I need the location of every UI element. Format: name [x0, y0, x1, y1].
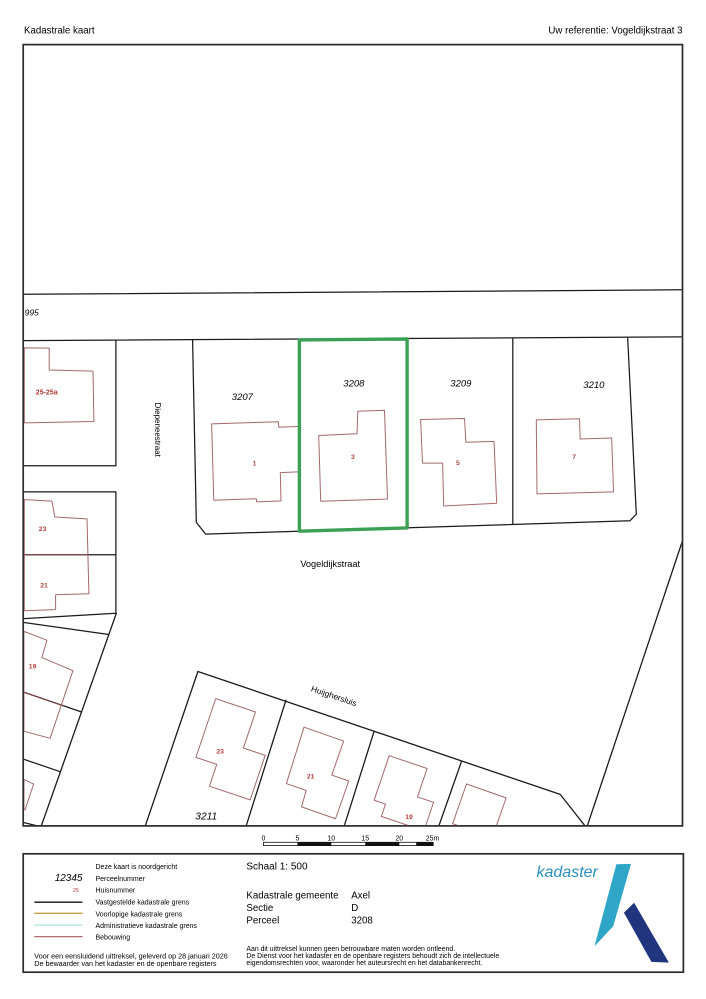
svg-text:Huijghersluis: Huijghersluis: [310, 683, 358, 708]
svg-text:5: 5: [456, 460, 460, 467]
svg-text:23: 23: [39, 526, 47, 533]
svg-text:Vogeldijkstraat: Vogeldijkstraat: [300, 559, 360, 569]
svg-text:Axel: Axel: [351, 891, 370, 902]
svg-text:Perceelnummer: Perceelnummer: [96, 876, 146, 883]
svg-text:Huisnummer: Huisnummer: [96, 888, 136, 895]
svg-text:21: 21: [307, 774, 315, 781]
svg-text:10: 10: [327, 836, 335, 843]
svg-text:3209: 3209: [450, 379, 472, 390]
svg-text:Sectie: Sectie: [246, 903, 273, 914]
svg-text:Kadastrale kaart: Kadastrale kaart: [24, 26, 95, 37]
svg-text:D: D: [351, 903, 358, 914]
svg-text:Voorlopige kadastrale grens: Voorlopige kadastrale grens: [96, 911, 183, 918]
svg-text:Kadastrale gemeente: Kadastrale gemeente: [246, 891, 338, 902]
svg-text:Bebouwing: Bebouwing: [96, 935, 131, 942]
svg-text:De bewaarder van het kadaster: De bewaarder van het kadaster en de open…: [34, 959, 217, 968]
svg-text:20: 20: [395, 836, 403, 843]
svg-text:Perceel: Perceel: [246, 915, 279, 926]
svg-text:0: 0: [261, 836, 265, 843]
svg-text:25: 25: [73, 888, 79, 894]
svg-text:19: 19: [405, 814, 413, 821]
svg-text:3211: 3211: [195, 812, 217, 823]
svg-text:3210: 3210: [583, 380, 605, 391]
svg-text:eigendomsrechten voor, waarond: eigendomsrechten voor, waaronder het aut…: [246, 960, 482, 967]
svg-text:Diepeneestraat: Diepeneestraat: [153, 403, 162, 458]
svg-text:7: 7: [572, 454, 576, 461]
svg-text:Aan dit uittreksel kunnen geen: Aan dit uittreksel kunnen geen betrouwba…: [246, 946, 455, 953]
svg-text:De Dienst voor het kadaster en: De Dienst voor het kadaster en de openba…: [246, 953, 499, 960]
svg-text:995: 995: [25, 308, 39, 318]
svg-text:25m: 25m: [426, 836, 440, 843]
svg-text:Uw referentie: Vogeldijkstraat: Uw referentie: Vogeldijkstraat 3: [548, 26, 682, 37]
svg-text:12345: 12345: [55, 873, 83, 884]
svg-text:Vastgestelde kadastrale grens: Vastgestelde kadastrale grens: [96, 900, 190, 907]
svg-text:3207: 3207: [232, 392, 254, 403]
svg-text:21: 21: [40, 583, 48, 590]
svg-text:25-25a: 25-25a: [36, 390, 58, 397]
svg-text:Deze kaart is noordgericht: Deze kaart is noordgericht: [96, 864, 178, 871]
svg-text:3208: 3208: [351, 915, 373, 926]
svg-text:5: 5: [295, 836, 299, 843]
svg-text:19: 19: [29, 663, 37, 670]
svg-text:3: 3: [351, 454, 355, 461]
svg-text:Schaal 1: 500: Schaal 1: 500: [246, 862, 308, 873]
svg-text:15: 15: [361, 836, 369, 843]
svg-text:1: 1: [253, 460, 257, 467]
svg-text:Administratieve kadastrale gre: Administratieve kadastrale grens: [96, 923, 198, 930]
svg-text:3208: 3208: [343, 379, 365, 390]
svg-text:23: 23: [216, 749, 224, 756]
svg-text:kadaster: kadaster: [537, 864, 599, 881]
